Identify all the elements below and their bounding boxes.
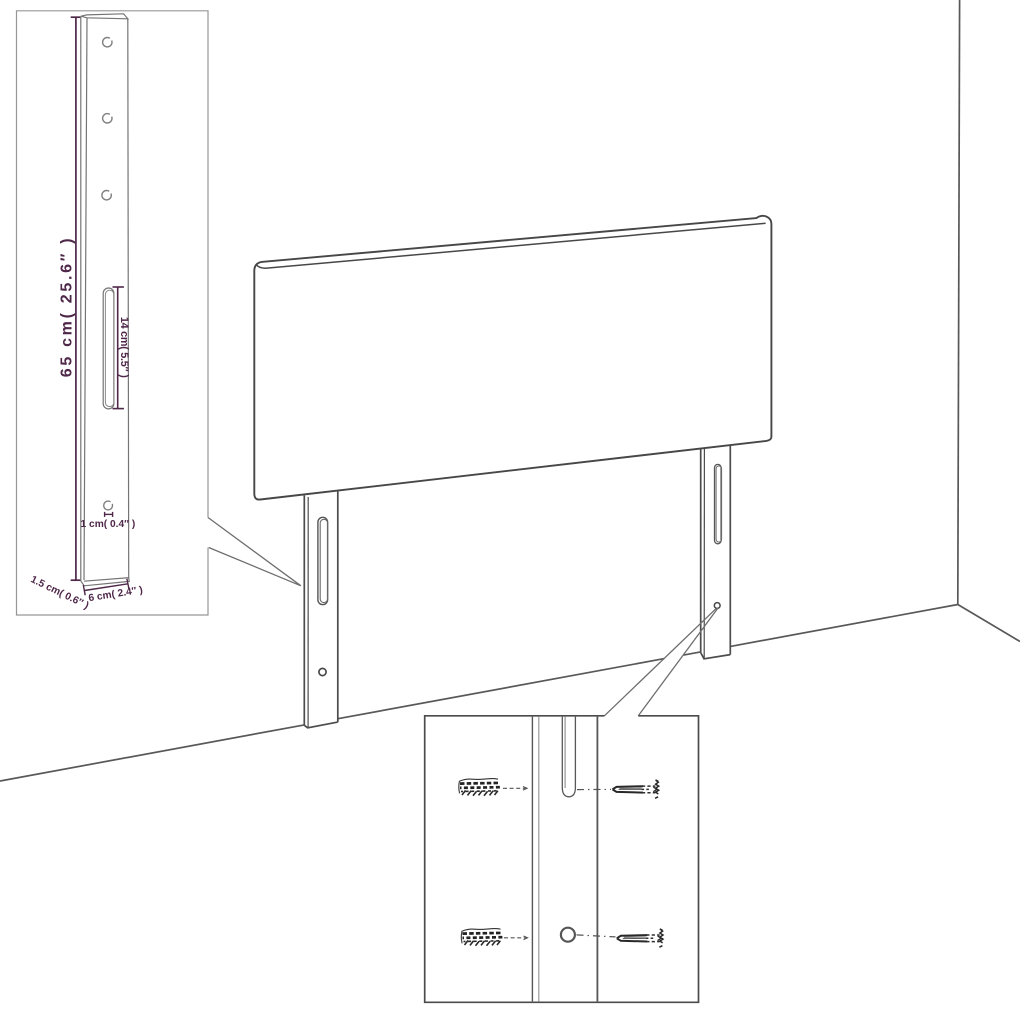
svg-text:14 cm( 5.5″ ): 14 cm( 5.5″ ) [118,317,130,378]
svg-text:6 cm( 2.4″ ): 6 cm( 2.4″ ) [88,585,144,604]
svg-text:65 cm( 25.6″ ): 65 cm( 25.6″ ) [59,236,76,378]
svg-text:1 cm( 0.4″ ): 1 cm( 0.4″ ) [81,519,136,530]
